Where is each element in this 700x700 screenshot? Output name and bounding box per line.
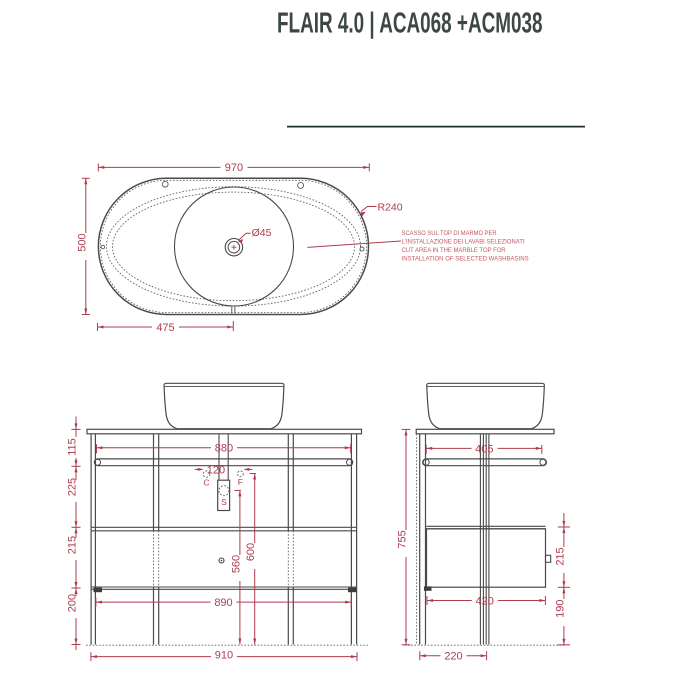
svg-text:190: 190 xyxy=(554,600,566,618)
svg-text:L'INSTALLAZIONE DEI LAVABI SEL: L'INSTALLAZIONE DEI LAVABI SELEZIONATI xyxy=(402,239,525,246)
svg-text:215: 215 xyxy=(67,536,79,554)
svg-text:600: 600 xyxy=(245,543,257,561)
svg-text:225: 225 xyxy=(67,478,79,496)
svg-text:420: 420 xyxy=(476,595,494,607)
svg-text:F: F xyxy=(238,477,243,487)
svg-text:INSTALLATION OF SELECTED WASHB: INSTALLATION OF SELECTED WASHBASINS xyxy=(402,256,529,263)
svg-text:220: 220 xyxy=(444,651,462,663)
svg-text:R240: R240 xyxy=(378,202,403,214)
svg-text:755: 755 xyxy=(397,530,409,548)
svg-text:890: 890 xyxy=(214,597,232,609)
svg-text:SCASSO SUL TOP DI MARMO PER: SCASSO SUL TOP DI MARMO PER xyxy=(402,230,497,237)
svg-text:CUT AREA IN THE MARBLE TOP FOR: CUT AREA IN THE MARBLE TOP FOR xyxy=(402,247,506,254)
svg-text:970: 970 xyxy=(225,162,243,174)
svg-text:500: 500 xyxy=(76,233,88,251)
svg-text:200: 200 xyxy=(67,594,79,612)
svg-text:115: 115 xyxy=(67,438,79,456)
svg-text:120: 120 xyxy=(207,464,225,476)
svg-text:405: 405 xyxy=(475,443,493,455)
svg-text:S: S xyxy=(221,497,227,507)
svg-text:560: 560 xyxy=(230,555,242,573)
svg-text:Ø45: Ø45 xyxy=(252,227,272,239)
svg-text:880: 880 xyxy=(215,443,233,455)
svg-text:215: 215 xyxy=(554,547,566,565)
svg-text:475: 475 xyxy=(156,322,174,334)
svg-text:910: 910 xyxy=(215,650,233,662)
svg-text:C: C xyxy=(203,478,209,488)
svg-text:FLAIR 4.0 | ACA068 +ACM038: FLAIR 4.0 | ACA068 +ACM038 xyxy=(277,8,543,40)
